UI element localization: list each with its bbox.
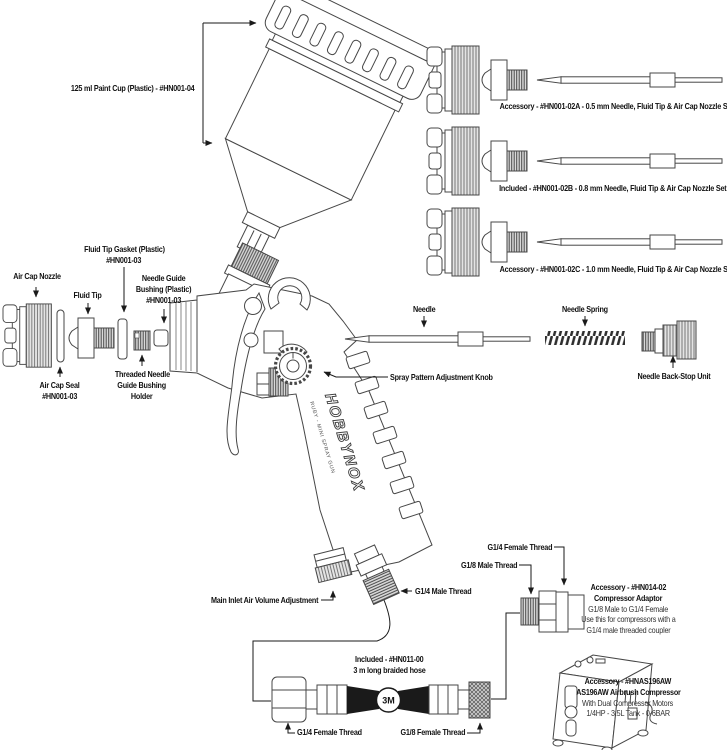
nozzle-set-a-label: Accessory - #HN001-02A - 0.5 mm Needle, …: [479, 101, 727, 112]
g14-male-thread-label: G1/4 Male Thread: [415, 586, 525, 597]
needle-back-stop-label: Needle Back-Stop Unit: [612, 371, 727, 382]
needle-back-stop-part: [642, 321, 696, 359]
bushing-holder-part: [134, 331, 150, 350]
needle-guide-bushing-part: [154, 330, 168, 346]
fluid-tip-part: [69, 318, 114, 358]
needle-spring-label: Needle Spring: [545, 304, 625, 315]
front-parts-row: [3, 304, 168, 367]
hose-g18-female-label: G1/8 Female Thread: [362, 727, 465, 738]
bushing-holder-label: Threaded Needle Guide Bushing Holder: [96, 369, 188, 401]
adaptor-g14-female-label: G1/4 Female Thread: [450, 542, 552, 553]
fluid-tip-label: Fluid Tip: [58, 290, 118, 301]
needle-label: Needle: [394, 304, 454, 315]
fluid-tip-gasket-label: Fluid Tip Gasket (Plastic) #HN001-03: [74, 244, 174, 266]
hose-label: Included - #HN011-00 3 m long braided ho…: [318, 654, 460, 676]
compressor-label: Accessory - #HNAS196AW AS196AW Airbrush …: [553, 676, 703, 719]
air-cap-seal-label: Air Cap Seal #HN001-03: [20, 380, 100, 402]
hose-assembly: 3M: [272, 677, 490, 722]
fluid-tip-gasket-part: [118, 319, 127, 359]
air-cap-nozzle-label: Air Cap Nozzle: [1, 271, 73, 282]
compressor-adaptor-label: Accessory - #HN014-02 Compressor Adaptor…: [556, 582, 700, 636]
air-cap-nozzle-part: [3, 304, 51, 367]
paint-cup-drawing: [171, 0, 440, 290]
needle-guide-bushing-label: Needle Guide Bushing (Plastic) #HN001-03: [117, 273, 211, 305]
hose-badge-text: 3M: [382, 695, 395, 705]
needle-part: [345, 332, 530, 346]
air-cap-seal-part: [57, 310, 64, 362]
paint-cup-label: 125 ml Paint Cup (Plastic) - #HN001-04: [18, 83, 194, 94]
main-inlet-label: Main Inlet Air Volume Adjustment: [155, 595, 318, 606]
needle-spring-part: [545, 331, 625, 345]
nozzle-set-c-label: Accessory - #HN001-02C - 1.0 mm Needle, …: [479, 264, 727, 275]
parts-diagram: RUBY - MINI SPRAY GUN HOBBYNOX: [0, 0, 727, 750]
spray-gun-body: RUBY - MINI SPRAY GUN HOBBYNOX: [170, 278, 432, 605]
spray-pattern-knob-label: Spray Pattern Adjustment Knob: [390, 372, 560, 383]
nozzle-set-b-label: Included - #HN001-02B - 0.8 mm Needle, F…: [479, 183, 727, 194]
adaptor-g18-male-label: G1/8 Male Thread: [415, 560, 517, 571]
